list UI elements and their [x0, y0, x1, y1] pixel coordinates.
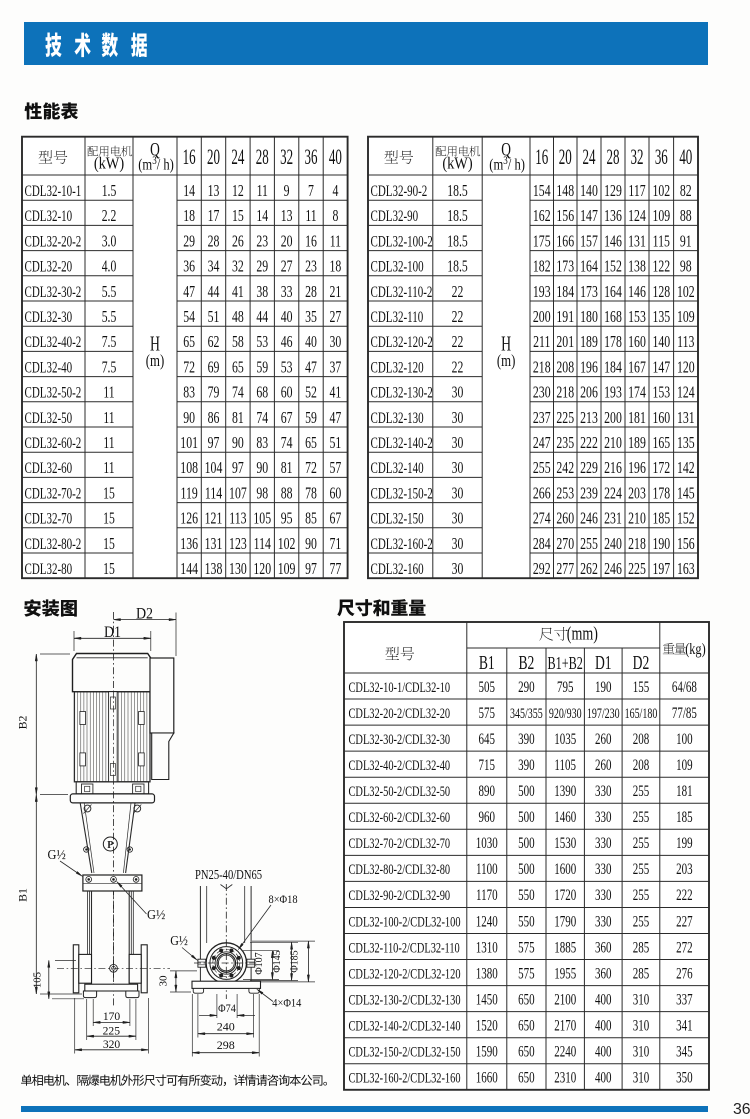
svg-text:CDL32-80-2: CDL32-80-2 [25, 535, 82, 552]
svg-text:146: 146 [628, 283, 646, 302]
svg-text:20: 20 [281, 233, 293, 252]
svg-text:152: 152 [677, 510, 695, 529]
svg-text:208: 208 [633, 730, 650, 747]
svg-text:181: 181 [676, 782, 692, 799]
svg-text:920/930: 920/930 [549, 705, 582, 721]
svg-text:72: 72 [183, 359, 195, 378]
svg-text:184: 184 [604, 359, 622, 378]
svg-text:255: 255 [633, 886, 650, 903]
svg-text:124: 124 [677, 384, 695, 403]
svg-text:166: 166 [556, 233, 574, 252]
svg-text:1035: 1035 [554, 730, 576, 747]
svg-text:36: 36 [655, 144, 668, 168]
svg-text:D2: D2 [136, 606, 153, 623]
svg-text:216: 216 [604, 459, 622, 478]
svg-text:575: 575 [518, 964, 535, 981]
svg-text:77: 77 [330, 560, 342, 579]
svg-text:(m): (m) [497, 351, 515, 370]
svg-text:890: 890 [479, 782, 496, 799]
svg-text:131: 131 [205, 535, 223, 554]
svg-text:400: 400 [595, 1069, 612, 1086]
svg-text:1590: 1590 [476, 1043, 498, 1060]
svg-text:2240: 2240 [554, 1043, 576, 1060]
svg-text:44: 44 [208, 283, 220, 302]
svg-text:206: 206 [580, 384, 598, 403]
svg-text:172: 172 [652, 459, 670, 478]
svg-text:180: 180 [580, 308, 598, 327]
svg-text:400: 400 [595, 1017, 612, 1034]
svg-text:285: 285 [633, 964, 650, 981]
svg-text:505: 505 [479, 678, 496, 695]
svg-text:9: 9 [284, 182, 290, 201]
svg-text:239: 239 [580, 485, 598, 504]
svg-text:CDL32-70-2/CDL32-70: CDL32-70-2/CDL32-70 [349, 835, 451, 851]
svg-text:Φ185: Φ185 [290, 950, 301, 972]
svg-text:5.5: 5.5 [102, 283, 117, 302]
svg-text:CDL32-100-2/CDL32-100: CDL32-100-2/CDL32-100 [349, 914, 461, 930]
svg-text:74: 74 [232, 384, 244, 403]
svg-text:3.0: 3.0 [102, 233, 117, 252]
svg-text:CDL32-140: CDL32-140 [371, 459, 424, 476]
svg-text:330: 330 [595, 834, 612, 851]
svg-text:190: 190 [652, 535, 670, 554]
svg-text:285: 285 [633, 938, 650, 955]
svg-text:32: 32 [631, 144, 644, 168]
svg-text:160: 160 [628, 333, 646, 352]
svg-text:185: 185 [676, 808, 693, 825]
svg-text:500: 500 [518, 808, 535, 825]
svg-text:40: 40 [281, 308, 293, 327]
svg-text:390: 390 [518, 756, 535, 773]
svg-text:650: 650 [518, 1069, 535, 1086]
svg-text:2100: 2100 [554, 991, 576, 1008]
svg-text:120: 120 [677, 359, 695, 378]
svg-text:310: 310 [633, 991, 650, 1008]
svg-text:71: 71 [330, 535, 342, 554]
svg-text:CDL32-110-2/CDL32-110: CDL32-110-2/CDL32-110 [349, 940, 460, 956]
svg-text:175: 175 [533, 233, 551, 252]
svg-text:122: 122 [652, 258, 670, 277]
svg-text:(kW): (kW) [94, 154, 124, 172]
svg-text:22: 22 [452, 333, 464, 352]
svg-text:82: 82 [680, 182, 692, 201]
svg-text:128: 128 [652, 283, 670, 302]
svg-text:1885: 1885 [554, 938, 576, 955]
svg-text:CDL32-100-2: CDL32-100-2 [371, 233, 433, 250]
svg-text:8: 8 [332, 207, 338, 226]
svg-text:53: 53 [281, 359, 293, 378]
svg-text:98: 98 [256, 485, 268, 504]
svg-text:1030: 1030 [476, 834, 498, 851]
svg-text:18.5: 18.5 [447, 258, 467, 277]
svg-text:97: 97 [305, 560, 317, 579]
svg-text:29: 29 [256, 258, 268, 277]
svg-text:4: 4 [332, 182, 339, 201]
svg-text:11: 11 [305, 207, 316, 226]
svg-text:109: 109 [278, 560, 296, 579]
svg-text:98: 98 [680, 258, 692, 277]
svg-text:38: 38 [256, 283, 268, 302]
svg-text:218: 218 [533, 359, 551, 378]
svg-text:D1: D1 [104, 624, 121, 641]
svg-text:11: 11 [257, 182, 268, 201]
svg-text:131: 131 [628, 233, 646, 252]
svg-text:30: 30 [452, 409, 464, 428]
svg-text:46: 46 [281, 333, 293, 352]
svg-text:18.5: 18.5 [447, 233, 467, 252]
svg-text:65: 65 [232, 359, 244, 378]
svg-text:185: 185 [652, 510, 670, 529]
svg-text:11: 11 [103, 434, 114, 453]
svg-text:CDL32-150-2/CDL32-150: CDL32-150-2/CDL32-150 [349, 1044, 461, 1060]
svg-text:272: 272 [676, 938, 692, 955]
svg-text:2.2: 2.2 [102, 207, 117, 226]
svg-text:165: 165 [652, 434, 670, 453]
svg-text:B1: B1 [479, 652, 495, 674]
svg-text:168: 168 [604, 308, 622, 327]
svg-text:174: 174 [628, 384, 646, 403]
svg-text:165/180: 165/180 [625, 705, 658, 721]
svg-text:65: 65 [305, 434, 317, 453]
svg-text:193: 193 [604, 384, 622, 403]
svg-text:218: 218 [628, 535, 646, 554]
svg-text:90: 90 [232, 434, 244, 453]
svg-text:22: 22 [452, 308, 464, 327]
svg-text:CDL32-10-1: CDL32-10-1 [25, 182, 82, 199]
svg-text:CDL32-160: CDL32-160 [371, 560, 424, 577]
svg-text:197: 197 [652, 560, 670, 579]
svg-text:30: 30 [452, 535, 464, 554]
svg-text:2170: 2170 [554, 1017, 576, 1034]
svg-text:CDL32-80-2/CDL32-80: CDL32-80-2/CDL32-80 [349, 861, 451, 877]
svg-text:208: 208 [556, 359, 574, 378]
svg-text:1380: 1380 [476, 964, 498, 981]
svg-text:16: 16 [183, 144, 196, 168]
svg-text:CDL32-130-2/CDL32-130: CDL32-130-2/CDL32-130 [349, 992, 461, 1008]
svg-text:28: 28 [256, 144, 269, 168]
svg-text:292: 292 [533, 560, 551, 579]
svg-text:78: 78 [305, 485, 317, 504]
svg-text:32: 32 [280, 144, 293, 168]
svg-text:178: 178 [652, 485, 670, 504]
svg-text:21: 21 [330, 283, 342, 302]
svg-text:181: 181 [628, 409, 646, 428]
svg-text:57: 57 [330, 459, 342, 478]
svg-text:7.5: 7.5 [102, 359, 117, 378]
svg-text:109: 109 [676, 756, 693, 773]
svg-text:230: 230 [533, 384, 551, 403]
svg-text:1310: 1310 [476, 938, 498, 955]
svg-text:CDL32-150-2: CDL32-150-2 [371, 485, 433, 502]
svg-text:24: 24 [231, 144, 244, 168]
svg-text:CDL32-50-2: CDL32-50-2 [25, 384, 82, 401]
svg-text:276: 276 [676, 964, 693, 981]
svg-text:15: 15 [103, 535, 115, 554]
svg-text:CDL32-30-2/CDL32-30: CDL32-30-2/CDL32-30 [349, 731, 451, 747]
svg-text:CDL32-10-1/CDL32-10: CDL32-10-1/CDL32-10 [349, 679, 451, 695]
svg-text:7.5: 7.5 [102, 333, 117, 352]
svg-text:40: 40 [679, 144, 692, 168]
svg-text:153: 153 [628, 308, 646, 327]
svg-text:CDL32-70: CDL32-70 [25, 510, 73, 527]
svg-text:D1: D1 [595, 652, 612, 674]
svg-text:8×Φ18: 8×Φ18 [269, 893, 298, 906]
svg-text:120: 120 [253, 560, 271, 579]
svg-text:1240: 1240 [476, 912, 498, 929]
svg-text:29: 29 [183, 233, 195, 252]
svg-text:156: 156 [677, 535, 695, 554]
svg-text:155: 155 [633, 678, 650, 695]
svg-text:142: 142 [677, 459, 695, 478]
svg-text:22: 22 [452, 283, 464, 302]
svg-text:60: 60 [281, 384, 293, 403]
svg-text:CDL32-40-2: CDL32-40-2 [25, 333, 82, 350]
svg-text:213: 213 [580, 409, 598, 428]
svg-text:164: 164 [604, 283, 622, 302]
svg-text:11: 11 [330, 233, 341, 252]
svg-text:225: 225 [556, 409, 574, 428]
svg-text:123: 123 [229, 535, 247, 554]
svg-text:225: 225 [103, 1024, 121, 1037]
svg-text:Φ145: Φ145 [272, 950, 283, 972]
svg-text:222: 222 [676, 886, 692, 903]
svg-text:167: 167 [628, 359, 646, 378]
svg-text:59: 59 [305, 409, 317, 428]
svg-text:68: 68 [256, 384, 268, 403]
svg-text:260: 260 [595, 756, 612, 773]
svg-text:34: 34 [208, 258, 220, 277]
svg-text:210: 210 [628, 510, 646, 529]
svg-text:200: 200 [533, 308, 551, 327]
svg-text:277: 277 [556, 560, 574, 579]
svg-text:330: 330 [595, 808, 612, 825]
svg-text:240: 240 [217, 1019, 235, 1033]
svg-text:345/355: 345/355 [510, 705, 543, 721]
svg-text:224: 224 [604, 485, 622, 504]
svg-text:81: 81 [281, 459, 293, 478]
svg-text:650: 650 [518, 1043, 535, 1060]
svg-text:500: 500 [518, 834, 535, 851]
svg-text:102: 102 [278, 535, 296, 554]
svg-text:15: 15 [103, 485, 115, 504]
svg-text:CDL32-30-2: CDL32-30-2 [25, 283, 82, 300]
svg-text:Φ107: Φ107 [254, 952, 265, 974]
svg-text:60: 60 [330, 485, 342, 504]
svg-text:135: 135 [652, 308, 670, 327]
svg-text:109: 109 [677, 308, 695, 327]
svg-text:20: 20 [207, 144, 220, 168]
svg-text:330: 330 [595, 860, 612, 877]
svg-text:30: 30 [452, 560, 464, 579]
svg-text:138: 138 [205, 560, 223, 579]
svg-text:41: 41 [232, 283, 244, 302]
svg-text:162: 162 [533, 207, 551, 226]
svg-text:255: 255 [580, 535, 598, 554]
svg-text:51: 51 [208, 308, 220, 327]
svg-text:140: 140 [580, 182, 598, 201]
svg-text:1.5: 1.5 [102, 182, 117, 201]
svg-text:CDL32-20-2: CDL32-20-2 [25, 233, 82, 250]
svg-text:101: 101 [180, 434, 198, 453]
svg-text:298: 298 [217, 1038, 235, 1052]
svg-text:28: 28 [208, 233, 220, 252]
svg-text:1600: 1600 [554, 860, 576, 877]
svg-text:30: 30 [452, 485, 464, 504]
svg-text:CDL32-120: CDL32-120 [371, 359, 424, 376]
svg-text:40: 40 [329, 144, 342, 168]
svg-text:69: 69 [208, 359, 220, 378]
svg-text:58: 58 [232, 333, 244, 352]
svg-text:97: 97 [232, 459, 244, 478]
svg-text:88: 88 [281, 485, 293, 504]
svg-text:1450: 1450 [476, 991, 498, 1008]
svg-text:960: 960 [479, 808, 496, 825]
svg-text:1790: 1790 [554, 912, 576, 929]
svg-text:30: 30 [330, 333, 342, 352]
svg-text:575: 575 [518, 938, 535, 955]
svg-text:5.5: 5.5 [102, 308, 117, 327]
svg-text:18: 18 [330, 258, 342, 277]
svg-text:CDL32-110-2: CDL32-110-2 [371, 283, 433, 300]
svg-text:105: 105 [32, 972, 44, 988]
svg-text:CDL32-40-2/CDL32-40: CDL32-40-2/CDL32-40 [349, 757, 451, 773]
svg-text:CDL32-140-2/CDL32-140: CDL32-140-2/CDL32-140 [349, 1018, 461, 1034]
svg-text:CDL32-100: CDL32-100 [371, 258, 424, 275]
svg-text:102: 102 [652, 182, 670, 201]
svg-text:310: 310 [633, 1043, 650, 1060]
svg-text:645: 645 [479, 730, 496, 747]
svg-text:231: 231 [604, 510, 622, 529]
svg-text:222: 222 [580, 434, 598, 453]
svg-text:47: 47 [330, 409, 342, 428]
svg-text:182: 182 [533, 258, 551, 277]
svg-text:1460: 1460 [554, 808, 576, 825]
svg-text:(mm): (mm) [567, 623, 598, 645]
svg-text:CDL32-60-2/CDL32-60: CDL32-60-2/CDL32-60 [349, 809, 451, 825]
svg-text:59: 59 [256, 359, 268, 378]
svg-text:121: 121 [205, 510, 223, 529]
svg-text:G½: G½ [48, 846, 66, 862]
svg-text:148: 148 [556, 182, 574, 201]
svg-text:114: 114 [254, 535, 272, 554]
svg-text:30: 30 [452, 434, 464, 453]
svg-text:62: 62 [208, 333, 220, 352]
svg-text:72: 72 [305, 459, 317, 478]
svg-text:1100: 1100 [476, 860, 498, 877]
svg-text:152: 152 [604, 258, 622, 277]
svg-text:247: 247 [533, 434, 551, 453]
svg-text:310: 310 [633, 1069, 650, 1086]
svg-text:550: 550 [518, 886, 535, 903]
svg-text:260: 260 [556, 510, 574, 529]
svg-text:83: 83 [256, 434, 268, 453]
svg-text:211: 211 [533, 333, 550, 352]
svg-text:7: 7 [308, 182, 314, 201]
svg-text:795: 795 [557, 678, 574, 695]
svg-text:310: 310 [633, 1017, 650, 1034]
svg-text:Φ74: Φ74 [218, 1003, 236, 1016]
svg-text:1390: 1390 [554, 782, 576, 799]
svg-text:CDL32-50: CDL32-50 [25, 409, 73, 426]
svg-text:330: 330 [595, 912, 612, 929]
svg-text:CDL32-120-2: CDL32-120-2 [371, 333, 433, 350]
svg-text:27: 27 [281, 258, 293, 277]
svg-text:284: 284 [533, 535, 551, 554]
svg-text:246: 246 [580, 510, 598, 529]
svg-text:4.0: 4.0 [102, 258, 117, 277]
svg-text:14: 14 [256, 207, 268, 226]
svg-text:157: 157 [580, 233, 598, 252]
svg-text:36: 36 [305, 144, 318, 168]
svg-text:320: 320 [103, 1038, 121, 1051]
svg-text:1530: 1530 [554, 834, 576, 851]
svg-text:114: 114 [205, 485, 223, 504]
svg-text:CDL32-160-2/CDL32-160: CDL32-160-2/CDL32-160 [349, 1070, 461, 1086]
svg-text:53: 53 [256, 333, 268, 352]
svg-text:255: 255 [633, 808, 650, 825]
svg-text:189: 189 [580, 333, 598, 352]
svg-text:CDL32-30: CDL32-30 [25, 308, 73, 325]
svg-text:51: 51 [330, 434, 342, 453]
svg-text:153: 153 [652, 384, 670, 403]
svg-text:154: 154 [533, 182, 551, 201]
svg-text:11: 11 [103, 409, 114, 428]
svg-text:16: 16 [305, 233, 317, 252]
svg-text:44: 44 [256, 308, 268, 327]
svg-text:262: 262 [580, 560, 598, 579]
svg-text:145: 145 [677, 485, 695, 504]
svg-text:350: 350 [676, 1069, 693, 1086]
svg-text:20: 20 [559, 144, 572, 168]
svg-text:22: 22 [452, 359, 464, 378]
svg-text:107: 107 [229, 485, 247, 504]
svg-text:156: 156 [556, 207, 574, 226]
svg-text:164: 164 [580, 258, 598, 277]
svg-text:79: 79 [208, 384, 220, 403]
svg-text:253: 253 [556, 485, 574, 504]
svg-text:P: P [107, 840, 113, 851]
svg-text:30: 30 [452, 384, 464, 403]
svg-text:715: 715 [479, 756, 496, 773]
svg-text:237: 237 [533, 409, 551, 428]
svg-text:270: 270 [556, 535, 574, 554]
svg-text:CDL32-90-2/CDL32-90: CDL32-90-2/CDL32-90 [349, 887, 451, 903]
svg-text:B1: B1 [16, 888, 30, 902]
svg-text:23: 23 [305, 258, 317, 277]
svg-text:CDL32-150: CDL32-150 [371, 510, 424, 527]
svg-text:83: 83 [183, 384, 195, 403]
svg-text:113: 113 [229, 510, 246, 529]
svg-text:337: 337 [676, 991, 693, 1008]
svg-text:G½: G½ [147, 907, 165, 923]
svg-text:D2: D2 [633, 652, 650, 674]
svg-text:17: 17 [208, 207, 220, 226]
svg-text:CDL32-60-2: CDL32-60-2 [25, 434, 82, 451]
svg-text:67: 67 [281, 409, 293, 428]
svg-text:184: 184 [556, 283, 574, 302]
svg-text:199: 199 [676, 834, 693, 851]
svg-text:200: 200 [604, 409, 622, 428]
svg-text:CDL32-130-2: CDL32-130-2 [371, 384, 433, 401]
svg-text:229: 229 [580, 459, 598, 478]
svg-text:193: 193 [533, 283, 551, 302]
svg-text:575: 575 [479, 704, 496, 721]
svg-text:CDL32-130: CDL32-130 [371, 409, 424, 426]
svg-text:218: 218 [556, 384, 574, 403]
svg-text:26: 26 [232, 233, 244, 252]
svg-text:77/85: 77/85 [672, 704, 697, 721]
svg-text:88: 88 [680, 207, 692, 226]
